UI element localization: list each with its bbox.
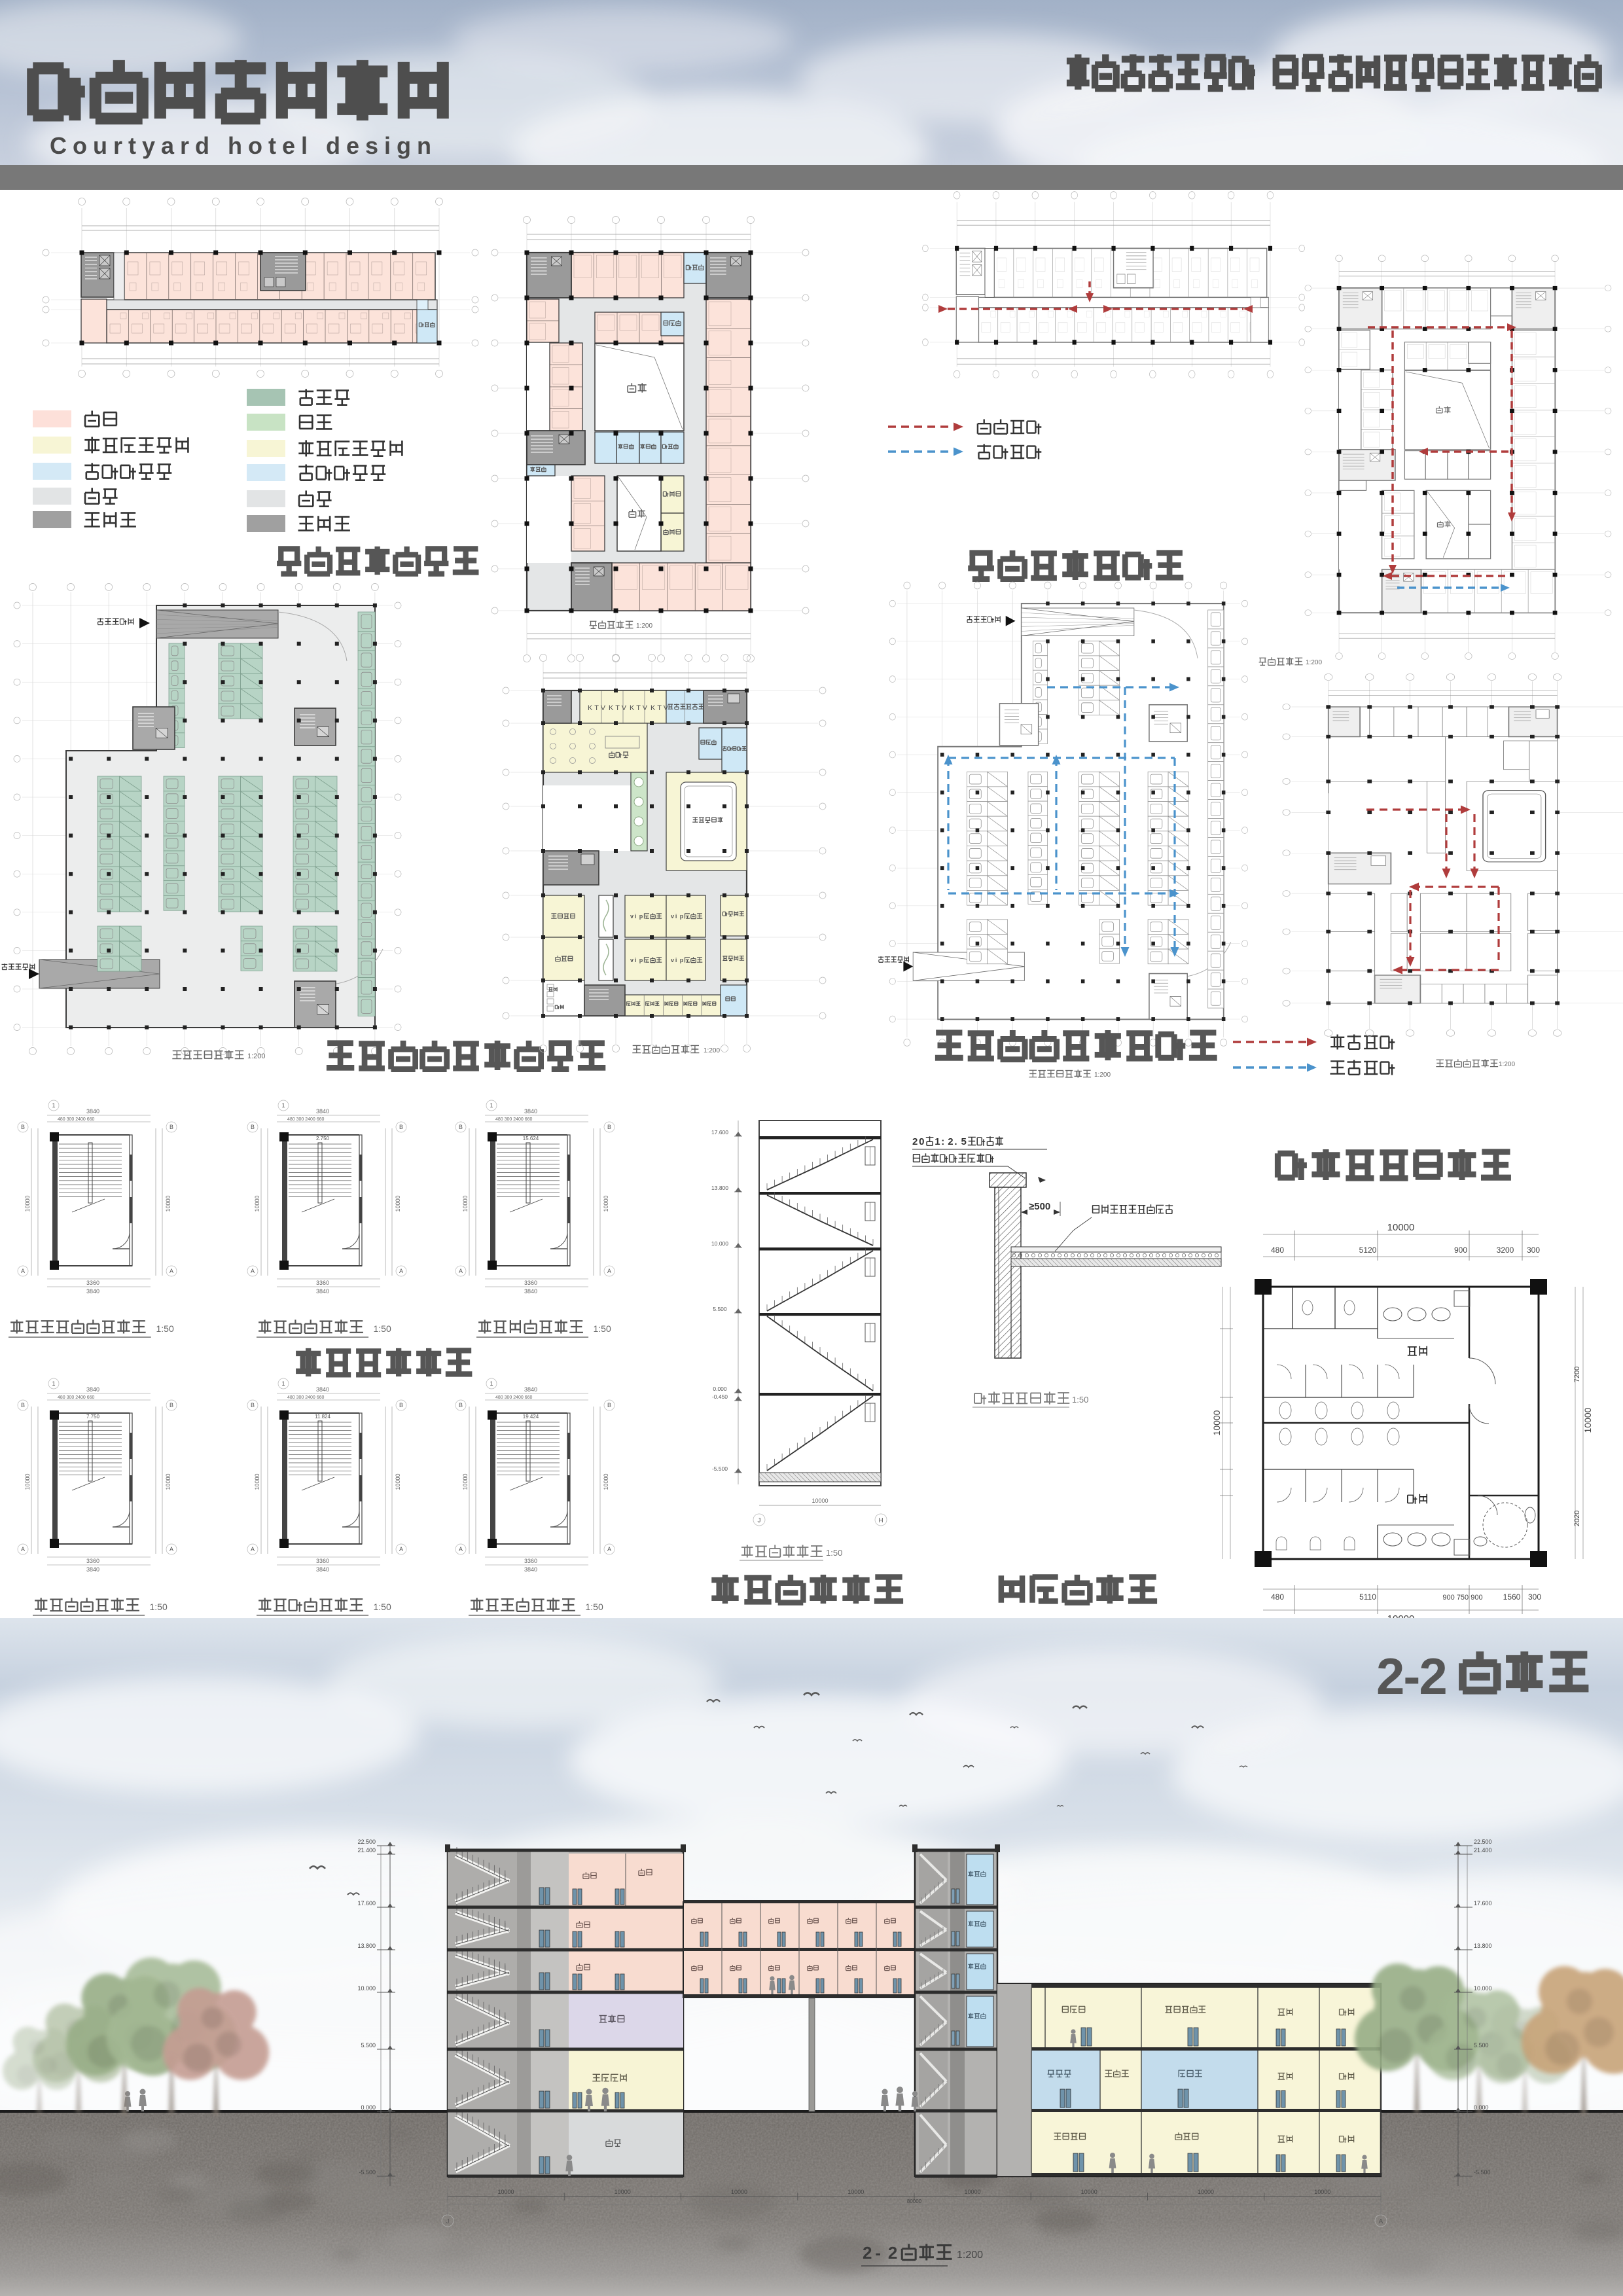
svg-text:480 300 2400 660: 480 300 2400 660 [287, 1117, 325, 1122]
svg-text:10000: 10000 [964, 2189, 980, 2195]
svg-text:13.800: 13.800 [1474, 1943, 1492, 1949]
svg-text:B: B [169, 1124, 173, 1130]
svg-text:i: i [635, 913, 637, 920]
svg-text:-5.500: -5.500 [712, 1465, 728, 1472]
svg-text:A: A [169, 1546, 173, 1552]
svg-text:1:200: 1:200 [247, 1052, 266, 1060]
svg-text:480 300 2400 660: 480 300 2400 660 [58, 1395, 95, 1400]
svg-text:5.500: 5.500 [713, 1306, 727, 1312]
svg-text:3360: 3360 [316, 1558, 329, 1564]
svg-text:300: 300 [1527, 1246, 1540, 1255]
svg-text:480 300 2400 660: 480 300 2400 660 [58, 1117, 95, 1122]
svg-text:v: v [630, 913, 633, 920]
svg-text:A: A [607, 1268, 611, 1274]
svg-text:1: 1 [935, 1136, 940, 1147]
svg-text:1:200: 1:200 [957, 2250, 983, 2261]
svg-text:10000: 10000 [24, 1195, 31, 1211]
svg-text:5.500: 5.500 [1474, 2042, 1489, 2049]
svg-text:0: 0 [919, 1136, 924, 1147]
svg-text:3840: 3840 [316, 1566, 329, 1573]
svg-text:A: A [459, 1268, 463, 1274]
svg-text:J: J [446, 2218, 450, 2225]
svg-text:13.800: 13.800 [357, 1943, 376, 1949]
svg-text:v: v [630, 957, 633, 963]
svg-text:3840: 3840 [524, 1386, 537, 1393]
svg-text:≥500: ≥500 [1029, 1201, 1050, 1212]
svg-text:5120: 5120 [1359, 1246, 1377, 1255]
svg-text:11.824: 11.824 [315, 1414, 330, 1420]
svg-text:1: 1 [490, 1102, 493, 1109]
svg-text:-5.500: -5.500 [359, 2169, 376, 2176]
svg-text:7200: 7200 [1573, 1367, 1581, 1382]
svg-text:1:50: 1:50 [374, 1323, 391, 1334]
svg-text:10.000: 10.000 [711, 1240, 728, 1247]
svg-text:1:50: 1:50 [150, 1602, 168, 1612]
svg-text:7.750: 7.750 [86, 1414, 100, 1420]
svg-text:10000: 10000 [24, 1473, 31, 1490]
svg-text:10000: 10000 [847, 2189, 864, 2195]
svg-text:3840: 3840 [86, 1566, 99, 1573]
svg-text:5.500: 5.500 [361, 2042, 376, 2049]
svg-text:.: . [954, 1136, 957, 1147]
svg-text:3840: 3840 [524, 1288, 537, 1295]
svg-text:p: p [639, 913, 643, 920]
svg-text:10.000: 10.000 [1474, 1985, 1492, 1992]
svg-text:2: 2 [912, 1136, 918, 1147]
svg-text:10000: 10000 [811, 1498, 828, 1504]
svg-text:B: B [459, 1402, 463, 1408]
svg-text:17.600: 17.600 [357, 1900, 376, 1907]
svg-text:1: 1 [52, 1380, 55, 1387]
svg-text:1:200: 1:200 [1499, 1061, 1515, 1068]
svg-text:A: A [1379, 2218, 1383, 2225]
svg-text:21.400: 21.400 [357, 1847, 376, 1854]
svg-text:10000: 10000 [603, 1195, 609, 1211]
svg-text:p: p [639, 957, 643, 963]
svg-text:A: A [399, 1268, 403, 1274]
svg-text:1: 1 [281, 1380, 285, 1387]
svg-text:2020: 2020 [1573, 1511, 1581, 1526]
svg-text:10000: 10000 [615, 2189, 631, 2195]
svg-text:10000: 10000 [1582, 1407, 1593, 1433]
svg-text:10000: 10000 [254, 1473, 260, 1490]
svg-text:1:50: 1:50 [594, 1323, 611, 1334]
svg-text:2-2: 2-2 [1376, 1647, 1446, 1705]
svg-text:i: i [675, 957, 677, 963]
svg-text:480: 480 [1271, 1246, 1284, 1255]
svg-text:10000: 10000 [603, 1473, 609, 1490]
svg-text:0.000: 0.000 [1474, 2104, 1489, 2111]
svg-text:10000: 10000 [395, 1195, 401, 1211]
svg-text:K T V: K T V [588, 704, 606, 712]
svg-text:A: A [251, 1546, 255, 1552]
svg-text:1:50: 1:50 [374, 1602, 391, 1612]
svg-text:3360: 3360 [86, 1280, 99, 1286]
svg-text:1:200: 1:200 [1306, 659, 1322, 666]
svg-text:22.500: 22.500 [357, 1839, 376, 1845]
svg-text:19.424: 19.424 [523, 1414, 539, 1420]
svg-text:K T V: K T V [651, 704, 669, 712]
svg-text:10000: 10000 [165, 1473, 171, 1490]
svg-text:i: i [635, 957, 637, 963]
svg-text:Courtyard hotel design: Courtyard hotel design [50, 132, 437, 159]
svg-text:0.000: 0.000 [713, 1386, 727, 1392]
svg-text::: : [941, 1136, 944, 1147]
svg-text:10000: 10000 [497, 2189, 514, 2195]
svg-text:B: B [21, 1124, 25, 1130]
svg-text:1:50: 1:50 [586, 1602, 603, 1612]
svg-text:H: H [878, 1517, 883, 1524]
svg-text:1:50: 1:50 [826, 1548, 842, 1558]
svg-text:B: B [169, 1402, 173, 1408]
svg-text:3840: 3840 [86, 1288, 99, 1295]
svg-text:5: 5 [961, 1136, 967, 1147]
svg-text:3840: 3840 [524, 1566, 537, 1573]
svg-text:B: B [251, 1402, 255, 1408]
svg-text:-0.450: -0.450 [712, 1393, 728, 1400]
svg-text:i: i [675, 913, 677, 920]
svg-text:15.624: 15.624 [523, 1136, 539, 1141]
svg-text:B: B [399, 1402, 403, 1408]
svg-text:p: p [680, 957, 684, 963]
svg-text:5110: 5110 [1359, 1592, 1376, 1602]
svg-text:A: A [251, 1268, 255, 1274]
svg-text:480 300 2400 660: 480 300 2400 660 [287, 1395, 325, 1400]
svg-text:2: 2 [863, 2243, 872, 2263]
svg-text:3360: 3360 [86, 1558, 99, 1564]
svg-text:1:50: 1:50 [156, 1323, 174, 1334]
svg-text:A: A [21, 1268, 25, 1274]
svg-text:J: J [758, 1517, 761, 1524]
svg-text:3200: 3200 [1497, 1246, 1514, 1255]
svg-text:-5.500: -5.500 [1474, 2169, 1491, 2176]
svg-text:480 300 2400 660: 480 300 2400 660 [495, 1117, 533, 1122]
svg-text:22.500: 22.500 [1474, 1839, 1492, 1845]
svg-text:3360: 3360 [524, 1558, 537, 1564]
svg-text:10000: 10000 [462, 1195, 469, 1211]
svg-text:1:50: 1:50 [1072, 1395, 1088, 1405]
svg-text:10000: 10000 [1387, 1222, 1415, 1233]
svg-text:3840: 3840 [316, 1288, 329, 1295]
svg-text:K T V: K T V [630, 704, 648, 712]
svg-text:0.000: 0.000 [361, 2104, 376, 2111]
svg-text:3840: 3840 [86, 1386, 99, 1393]
svg-text:1: 1 [490, 1380, 493, 1387]
svg-text:p: p [680, 913, 684, 920]
svg-text:3840: 3840 [86, 1108, 99, 1115]
svg-text:A: A [399, 1546, 403, 1552]
svg-text:-: - [875, 2243, 881, 2263]
svg-text:v: v [671, 957, 674, 963]
svg-text:10.000: 10.000 [357, 1985, 376, 1992]
svg-text:A: A [169, 1268, 173, 1274]
svg-text:1:200: 1:200 [704, 1047, 720, 1054]
svg-text:3840: 3840 [316, 1108, 329, 1115]
svg-text:300: 300 [1528, 1592, 1541, 1602]
svg-text:3360: 3360 [524, 1280, 537, 1286]
svg-text:v: v [671, 913, 674, 920]
svg-text:480 300 2400 660: 480 300 2400 660 [495, 1395, 533, 1400]
svg-text:B: B [251, 1124, 255, 1130]
svg-text:1:200: 1:200 [1094, 1071, 1111, 1079]
svg-text:1: 1 [281, 1102, 285, 1109]
svg-text:3840: 3840 [524, 1108, 537, 1115]
svg-text:900 750 900: 900 750 900 [1442, 1594, 1482, 1602]
svg-text:10000: 10000 [731, 2189, 747, 2195]
svg-text:2.750: 2.750 [316, 1136, 330, 1141]
svg-text:2: 2 [948, 1136, 953, 1147]
svg-text:3360: 3360 [316, 1280, 329, 1286]
svg-text:480: 480 [1271, 1592, 1284, 1602]
svg-text:10000: 10000 [462, 1473, 469, 1490]
svg-text:A: A [607, 1546, 611, 1552]
svg-text:17.600: 17.600 [711, 1129, 728, 1136]
svg-text:1560: 1560 [1503, 1592, 1521, 1602]
svg-text:10000: 10000 [1081, 2189, 1097, 2195]
svg-text:17.600: 17.600 [1474, 1900, 1492, 1907]
svg-text:1:200: 1:200 [636, 622, 652, 630]
svg-text:3840: 3840 [316, 1386, 329, 1393]
svg-text:10000: 10000 [1314, 2189, 1330, 2195]
svg-text:B: B [21, 1402, 25, 1408]
svg-text:10000: 10000 [165, 1195, 171, 1211]
svg-text:B: B [607, 1124, 611, 1130]
svg-text:2: 2 [888, 2243, 897, 2263]
svg-text:10000: 10000 [1198, 2189, 1214, 2195]
svg-text:10000: 10000 [395, 1473, 401, 1490]
svg-text:A: A [459, 1546, 463, 1552]
svg-text:10000: 10000 [254, 1195, 260, 1211]
svg-text:B: B [399, 1124, 403, 1130]
svg-text:1: 1 [52, 1102, 55, 1109]
svg-text:K T V: K T V [609, 704, 627, 712]
svg-text:900: 900 [1454, 1246, 1467, 1255]
svg-text:B: B [607, 1402, 611, 1408]
svg-text:A: A [21, 1546, 25, 1552]
svg-text:80000: 80000 [907, 2198, 922, 2204]
svg-text:21.400: 21.400 [1474, 1847, 1492, 1854]
svg-text:13.800: 13.800 [711, 1185, 728, 1191]
svg-text:B: B [459, 1124, 463, 1130]
